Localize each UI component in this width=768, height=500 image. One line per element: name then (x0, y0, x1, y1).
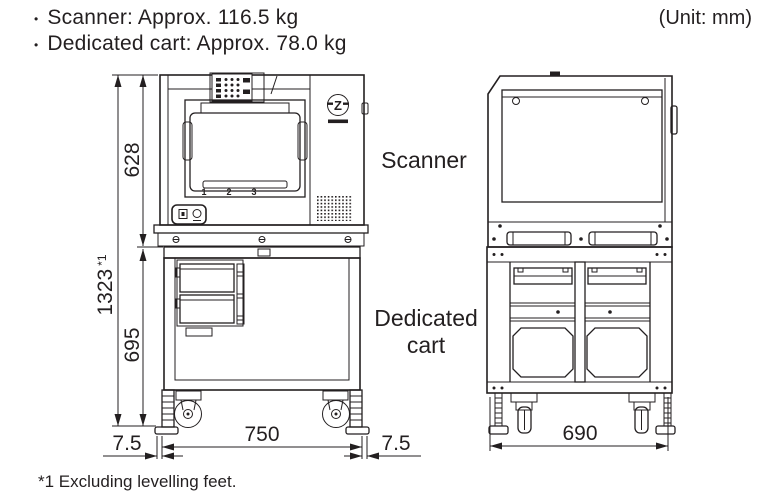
cart-center-post (575, 262, 585, 382)
dim-overhang-right: 7.5 (344, 432, 421, 456)
front-right-leg (323, 390, 370, 434)
brand-logo: Z (327, 95, 349, 124)
dimension-diagram: • Scanner: Approx. 116.5 kg • Dedicated … (0, 0, 768, 500)
side-view-scanner (488, 72, 677, 248)
dim-cart-height-text: 695 (121, 327, 144, 362)
power-switch (172, 205, 206, 224)
scanner-base-plate (154, 225, 368, 233)
front-left-leg (155, 390, 202, 434)
dim-overhang-left: 7.5 (103, 432, 183, 456)
dim-overhang-right-text: 7.5 (381, 432, 410, 455)
front-view-cart (155, 247, 369, 434)
slot-number-3: 3 (251, 187, 256, 197)
dim-total-height: 1323*1 (94, 75, 118, 426)
dim-cart-width-text: 750 (244, 423, 279, 446)
logo-letter: Z (334, 98, 342, 113)
control-keypad (210, 73, 264, 102)
dim-overhang-left-text: 7.5 (112, 432, 141, 455)
slot-number-1: 1 (201, 187, 206, 197)
side-left-leg (489, 393, 537, 434)
dim-scanner-height-text: 628 (121, 142, 144, 177)
dim-total-height-text: 1323*1 (94, 254, 117, 315)
dim-cart-height: 695 (121, 249, 144, 426)
slot-number-2: 2 (226, 187, 231, 197)
dim-cart-depth-text: 690 (562, 422, 597, 445)
slide-loader-door (183, 100, 307, 197)
side-handle (362, 103, 368, 114)
side-view-cart (487, 247, 675, 434)
dim-scanner-height: 628 (121, 75, 144, 246)
technical-drawing: 1 2 3 Z (0, 0, 768, 500)
drawer-unit (176, 260, 244, 336)
vent-grille (317, 196, 353, 221)
front-view-scanner: 1 2 3 Z (154, 73, 368, 246)
scanner-base-band (158, 233, 364, 246)
